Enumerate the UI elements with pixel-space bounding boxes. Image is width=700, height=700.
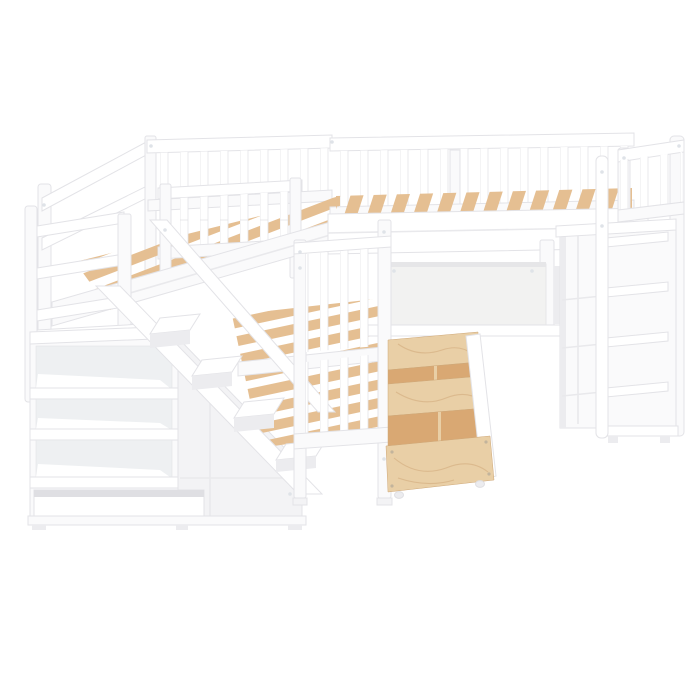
staircase-foot xyxy=(176,525,188,530)
cubby-3 xyxy=(30,440,178,488)
footboard-spindles-upper xyxy=(306,248,378,352)
base-slot xyxy=(34,490,204,516)
screw xyxy=(484,440,487,443)
cubby-2 xyxy=(30,399,178,440)
slot-ceiling xyxy=(34,490,204,497)
footboard-foot xyxy=(377,498,392,505)
desk-privacy-panel xyxy=(378,264,546,326)
desk xyxy=(368,240,560,336)
cabinet-body xyxy=(604,226,676,432)
screw xyxy=(390,484,393,487)
staircase-foot xyxy=(32,525,46,530)
drawer-divider-seam xyxy=(434,366,437,382)
hinge-dot xyxy=(530,269,534,273)
drawer-divider-seam xyxy=(438,412,441,444)
shelf-front xyxy=(30,388,178,399)
step-1 xyxy=(150,314,200,348)
product-photo xyxy=(0,0,700,700)
shelf-front xyxy=(30,429,178,440)
cubby-1 xyxy=(30,346,178,399)
drawer-caster xyxy=(476,481,485,488)
staircase-base xyxy=(28,516,306,525)
desk-shadow-gap xyxy=(554,266,560,324)
step-tread xyxy=(150,314,200,334)
footboard-foot xyxy=(293,498,307,505)
shelf-column-edge-shade xyxy=(560,232,566,428)
desk-panel-top-edge xyxy=(378,262,546,267)
bunk-bed-scene xyxy=(0,0,700,700)
drawer-caster xyxy=(395,492,404,499)
screw xyxy=(390,450,393,453)
cabinet-foot xyxy=(660,436,670,443)
hinge-dot xyxy=(392,269,396,273)
storage-drawers xyxy=(386,332,496,498)
footboard-spindles-lower xyxy=(306,354,378,436)
ladder-side-rail xyxy=(596,156,608,438)
cabinet-base xyxy=(602,426,678,436)
screw xyxy=(487,472,490,475)
cabinet-foot xyxy=(608,436,618,443)
shelf-front xyxy=(30,477,178,488)
footboard-post-left xyxy=(294,240,306,498)
step-tread xyxy=(192,356,242,376)
staircase-foot xyxy=(288,525,302,530)
